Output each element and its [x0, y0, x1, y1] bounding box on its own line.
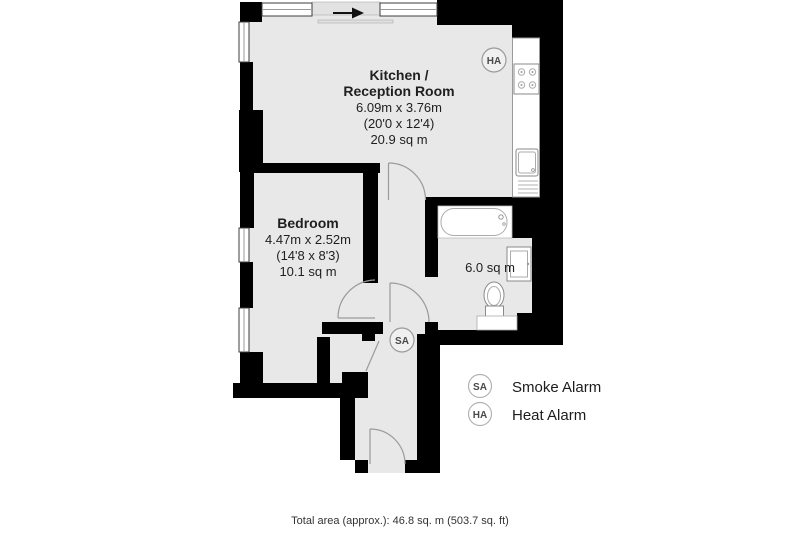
- smoke-alarm-marker: SA: [390, 328, 414, 352]
- window: [262, 3, 312, 16]
- toilet-icon: [484, 282, 504, 317]
- legend-item-smoke-alarm: SA Smoke Alarm: [469, 375, 602, 398]
- heat-alarm-code: HA: [487, 56, 501, 67]
- bedroom-name: Bedroom: [277, 215, 338, 231]
- kitchen-name-line1: Kitchen /: [369, 67, 428, 83]
- kitchen-fixtures: [513, 38, 540, 197]
- legend-smoke-label: Smoke Alarm: [512, 379, 601, 396]
- sill-track: [318, 20, 393, 23]
- bedroom-area: 10.1 sq m: [279, 264, 336, 279]
- vanity-shelf: [477, 316, 517, 330]
- window: [239, 308, 249, 352]
- legend-item-heat-alarm: HA Heat Alarm: [469, 403, 587, 426]
- legend-heat-label: Heat Alarm: [512, 407, 586, 424]
- kitchen-name-line2: Reception Room: [343, 83, 454, 99]
- bedroom-dim-imperial: (14'8 x 8'3): [276, 248, 340, 263]
- total-area-note: Total area (approx.): 46.8 sq. m (503.7 …: [291, 515, 509, 527]
- heat-alarm-marker: HA: [482, 48, 506, 72]
- window: [239, 228, 249, 262]
- legend-smoke-code: SA: [473, 382, 487, 393]
- vestibule-floor: [326, 334, 368, 374]
- legend: SA Smoke Alarm HA Heat Alarm: [469, 375, 602, 426]
- smoke-alarm-code: SA: [395, 336, 409, 347]
- floorplan-drawing: Kitchen / Reception Room 6.09m x 3.76m (…: [0, 0, 811, 542]
- legend-heat-code: HA: [473, 410, 487, 421]
- kitchen-dim-metric: 6.09m x 3.76m: [356, 100, 442, 115]
- window: [239, 22, 249, 62]
- bathroom-area: 6.0 sq m: [465, 260, 515, 275]
- kitchen-dim-imperial: (20'0 x 12'4): [364, 116, 435, 131]
- stove-icon: [514, 64, 539, 94]
- floorplan-page: Kitchen / Reception Room 6.09m x 3.76m (…: [0, 0, 811, 542]
- kitchen-area: 20.9 sq m: [370, 132, 427, 147]
- bathtub-icon: [438, 206, 512, 238]
- window: [380, 3, 437, 16]
- bedroom-dim-metric: 4.47m x 2.52m: [265, 232, 351, 247]
